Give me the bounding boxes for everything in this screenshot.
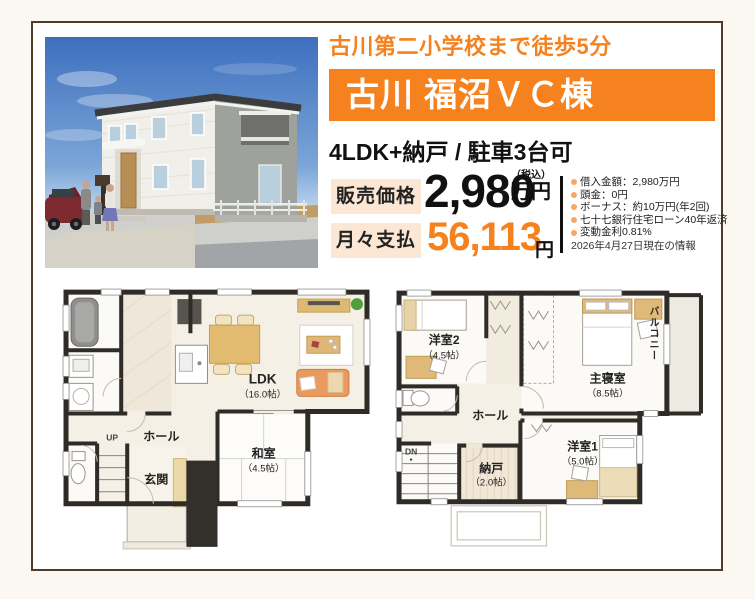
bullet-dot-icon [571,230,577,236]
washing-machine [69,383,93,410]
loan-details: 借入金額：2,980万円 頭金：0円 ボーナス：約10万円(年2回) 七十七銀行… [560,176,743,253]
bedroom2-label: 洋室2 [429,332,460,347]
monthly-payment-label: 月々支払 [331,223,421,258]
hall-1f-label: ホール [143,430,179,444]
balcony [669,295,701,413]
bullet-dot-icon [571,204,577,210]
wall-block [186,461,217,547]
loan-item: 借入金額：2,980万円 [571,176,743,189]
sale-unit-manen: 万円 [511,181,551,203]
tv-board [298,299,350,312]
master-label: 主寝室 [590,370,626,385]
kitchen-island [175,345,207,383]
sale-price-unit: （税込） 万円 [511,170,551,203]
info-date-note: 2026年4月27日現在の情報 [571,240,743,253]
kitchen-area [121,292,171,413]
ldk-label: LDK [249,371,277,386]
hall-2f-label: ホール [472,408,508,422]
fence [213,200,307,222]
loan-item-text: 変動金利0.81% [580,226,652,239]
nando-label: 納戸 [479,461,503,476]
loan-item-text: 頭金：0円 [580,189,628,202]
washitsu-size-label: （4.5帖） [243,463,285,475]
loan-item: ボーナス：約10万円(年2回) [571,201,743,214]
bedroom1-size-label: （5.0帖） [562,456,604,468]
bed-bedroom1 [600,436,637,497]
bed-bedroom2 [404,300,466,330]
master-size-label: （8.5帖） [587,387,629,399]
up-label: UP [106,433,118,443]
loan-item: 七十七銀行住宅ローン40年返済 [571,214,743,227]
nando-size-label: （2.0帖） [470,477,512,489]
washitsu-label: 和室 [251,446,276,461]
floor-plan-1f: LDK （16.0帖） 和室 （4.5帖） ホール 玄関 UP [57,283,373,571]
flyer-frame: 古川第二小学校まで徒歩5分 古川 福沼ＶＣ棟 4LDK+納戸 / 駐車3台可 販… [31,21,723,571]
bedroom2-size-label: （4.5帖） [423,349,465,361]
toilet-2f [403,390,429,406]
coffee-table [300,325,353,365]
property-title: 古川 福沼ＶＣ棟 [329,69,715,121]
bullet-dot-icon [571,192,577,198]
balcony-label: バルコニー [645,306,660,370]
house-exterior-photo [45,37,318,268]
loan-item-text: 借入金額：2,980万円 [580,176,680,189]
bed-master [583,299,632,365]
porch [127,504,186,542]
ldk-size-label: （16.0帖） [239,388,286,400]
bedroom1-label: 洋室1 [567,439,598,454]
sale-price-label: 販売価格 [331,179,421,214]
house [95,97,301,221]
monthly-payment-value: 56,113 [427,215,541,260]
bullet-dot-icon [571,217,577,223]
shoe-cabinet [173,459,186,507]
bullet-dot-icon [571,179,577,185]
loan-item-text: 七十七銀行住宅ローン40年返済 [580,214,728,227]
toilet-1f [71,452,85,484]
washstand [69,355,93,377]
loan-item: 変動金利0.81% [571,226,743,239]
monthly-unit-yen: 円 [535,235,554,262]
loan-item-text: ボーナス：約10万円(年2回) [580,201,710,214]
dn-label: DN [405,447,417,457]
roof-outline [451,506,546,546]
sofa [297,369,349,396]
loan-item: 頭金：0円 [571,189,743,202]
school-distance-headline: 古川第二小学校まで徒歩5分 [329,29,719,61]
plant [351,298,363,310]
closet-strip [486,293,519,383]
bathtub [71,298,98,346]
genkan-label: 玄関 [144,472,168,487]
layout-parking-info: 4LDK+納戸 / 駐車3台可 [329,133,572,167]
tax-included-note: （税込） [511,170,551,181]
